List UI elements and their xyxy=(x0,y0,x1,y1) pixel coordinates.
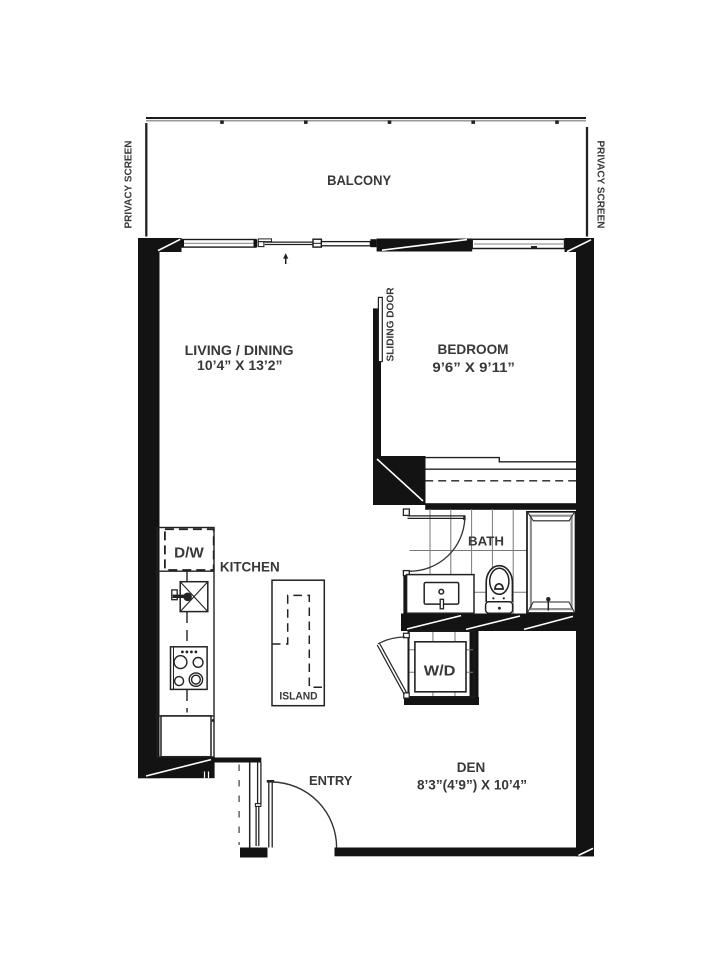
svg-text:10’4” X 13’2”: 10’4” X 13’2” xyxy=(197,357,283,373)
svg-text:KITCHEN: KITCHEN xyxy=(220,558,280,574)
svg-text:BATH: BATH xyxy=(468,535,504,549)
svg-text:SLIDING DOOR: SLIDING DOOR xyxy=(385,287,397,361)
svg-text:ISLAND: ISLAND xyxy=(279,691,317,703)
svg-text:PRIVACY SCREEN: PRIVACY SCREEN xyxy=(123,141,135,229)
svg-text:8’3”(4’9”) X 10’4”: 8’3”(4’9”) X 10’4” xyxy=(417,777,527,792)
svg-text:9’6” X 9’11”: 9’6” X 9’11” xyxy=(432,359,515,375)
svg-text:W/D: W/D xyxy=(424,662,456,679)
svg-text:LIVING / DINING: LIVING / DINING xyxy=(185,342,294,358)
svg-text:DEN: DEN xyxy=(457,759,486,775)
svg-text:ENTRY: ENTRY xyxy=(309,774,353,788)
svg-text:D/W: D/W xyxy=(174,545,204,562)
svg-text:BALCONY: BALCONY xyxy=(327,172,392,188)
svg-text:PRIVACY SCREEN: PRIVACY SCREEN xyxy=(595,141,607,229)
svg-text:BEDROOM: BEDROOM xyxy=(438,341,509,357)
